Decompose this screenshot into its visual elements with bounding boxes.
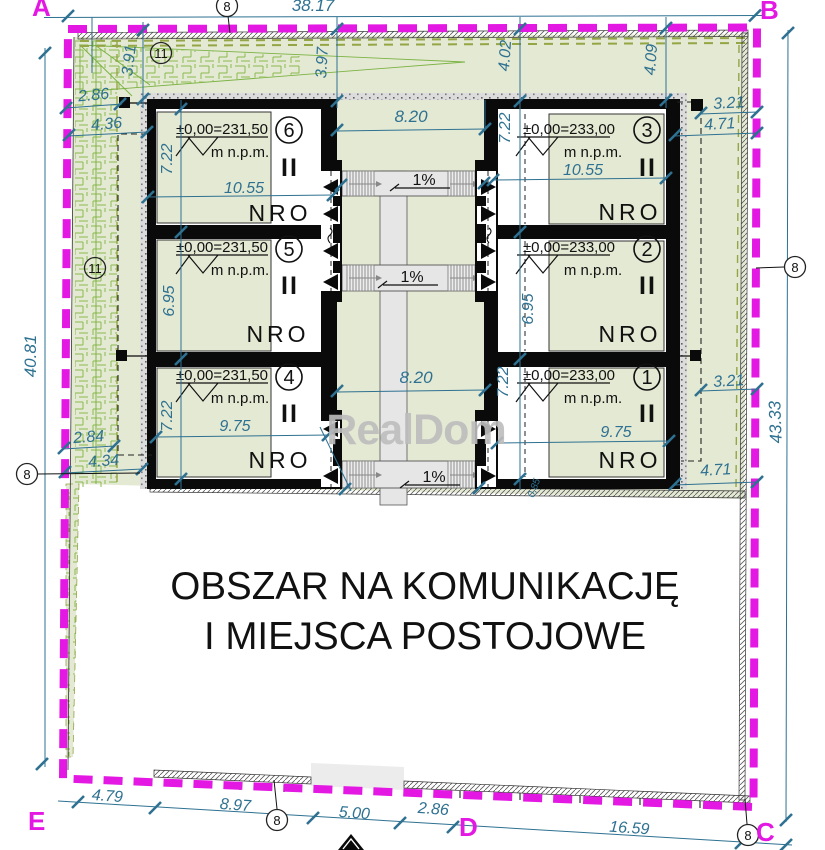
svg-text:C: C xyxy=(756,817,775,847)
svg-text:5: 5 xyxy=(283,239,294,261)
svg-text:II: II xyxy=(639,272,657,300)
svg-text:E: E xyxy=(28,806,45,836)
svg-text:11: 11 xyxy=(88,261,102,276)
svg-text:±0,00=233,00: ±0,00=233,00 xyxy=(523,239,615,256)
svg-text:7.22: 7.22 xyxy=(497,112,514,143)
svg-text:±0,00=233,00: ±0,00=233,00 xyxy=(523,367,615,384)
svg-text:7.22: 7.22 xyxy=(159,400,176,431)
svg-text:A: A xyxy=(32,0,51,22)
svg-text:B: B xyxy=(760,0,779,25)
svg-text:1%: 1% xyxy=(422,469,445,486)
svg-text:NRO: NRO xyxy=(246,321,309,347)
svg-text:4: 4 xyxy=(283,367,294,389)
svg-text:m n.p.m.: m n.p.m. xyxy=(564,144,622,161)
svg-text:NRO: NRO xyxy=(598,447,661,473)
svg-text:7.22: 7.22 xyxy=(495,366,512,397)
svg-text:2.86: 2.86 xyxy=(416,800,449,819)
svg-text:8.20: 8.20 xyxy=(399,368,433,387)
svg-text:OBSZAR NA KOMUNIKACJĘ: OBSZAR NA KOMUNIKACJĘ xyxy=(170,565,679,608)
svg-text:NRO: NRO xyxy=(598,321,661,347)
svg-text:±0,00=231,50: ±0,00=231,50 xyxy=(176,239,268,256)
svg-text:m n.p.m.: m n.p.m. xyxy=(211,262,269,279)
svg-text:NRO: NRO xyxy=(598,199,661,225)
svg-text:RealDom: RealDom xyxy=(326,406,505,454)
svg-text:NRO: NRO xyxy=(248,200,311,226)
svg-text:8.97: 8.97 xyxy=(219,796,252,815)
svg-text:4.36: 4.36 xyxy=(90,115,123,135)
svg-text:I MIEJSCA POSTOJOWE: I MIEJSCA POSTOJOWE xyxy=(204,615,646,658)
svg-text:±0,00=231,50: ±0,00=231,50 xyxy=(176,121,268,138)
svg-text:m n.p.m.: m n.p.m. xyxy=(564,262,622,279)
svg-text:8: 8 xyxy=(744,828,751,843)
svg-text:40.81: 40.81 xyxy=(21,335,40,378)
svg-text:3: 3 xyxy=(641,120,652,142)
svg-text:4.09: 4.09 xyxy=(642,43,661,75)
svg-text:8: 8 xyxy=(273,813,280,828)
svg-text:4.71: 4.71 xyxy=(704,115,736,134)
svg-text:1: 1 xyxy=(641,367,652,389)
svg-text:II: II xyxy=(281,154,299,182)
svg-text:6.95: 6.95 xyxy=(520,293,537,324)
svg-text:±0,00=233,00: ±0,00=233,00 xyxy=(523,121,615,138)
svg-text:m n.p.m.: m n.p.m. xyxy=(564,390,622,407)
svg-text:5.00: 5.00 xyxy=(338,804,370,823)
svg-text:10.55: 10.55 xyxy=(224,180,264,197)
svg-text:4.34: 4.34 xyxy=(88,452,120,471)
svg-text:2: 2 xyxy=(641,239,652,261)
svg-text:m n.p.m.: m n.p.m. xyxy=(211,144,269,161)
svg-text:38.17: 38.17 xyxy=(292,0,335,15)
svg-text:43.33: 43.33 xyxy=(765,400,785,444)
svg-text:7.22: 7.22 xyxy=(159,143,176,174)
svg-text:3.21: 3.21 xyxy=(713,94,745,113)
svg-text:8.20: 8.20 xyxy=(394,107,428,126)
svg-text:6: 6 xyxy=(283,120,294,142)
svg-text:NRO: NRO xyxy=(248,447,311,473)
svg-text:10.55: 10.55 xyxy=(563,162,603,179)
svg-text:16.59: 16.59 xyxy=(609,819,650,839)
svg-text:3.97: 3.97 xyxy=(313,46,332,79)
svg-text:2.86: 2.86 xyxy=(76,86,110,106)
svg-text:m n.p.m.: m n.p.m. xyxy=(211,390,269,407)
svg-text:II: II xyxy=(281,272,299,300)
svg-text:8: 8 xyxy=(791,260,798,275)
svg-text:II: II xyxy=(639,400,657,428)
svg-text:II: II xyxy=(281,400,299,428)
svg-text:1%: 1% xyxy=(400,269,423,286)
svg-text:8: 8 xyxy=(23,467,30,482)
svg-text:4.02: 4.02 xyxy=(496,39,515,71)
svg-text:6.95: 6.95 xyxy=(161,285,178,316)
svg-text:9.75: 9.75 xyxy=(600,424,631,441)
svg-text:9.75: 9.75 xyxy=(219,418,250,435)
svg-text:4.79: 4.79 xyxy=(91,787,123,806)
svg-text:±0,00=231,50: ±0,00=231,50 xyxy=(176,367,268,384)
svg-text:4.71: 4.71 xyxy=(700,461,732,480)
svg-text:D: D xyxy=(459,812,478,842)
svg-text:2.84: 2.84 xyxy=(72,428,105,447)
svg-text:3.21: 3.21 xyxy=(713,372,745,391)
svg-text:11: 11 xyxy=(154,46,168,61)
svg-text:1%: 1% xyxy=(412,172,435,189)
svg-text:8: 8 xyxy=(223,0,230,14)
